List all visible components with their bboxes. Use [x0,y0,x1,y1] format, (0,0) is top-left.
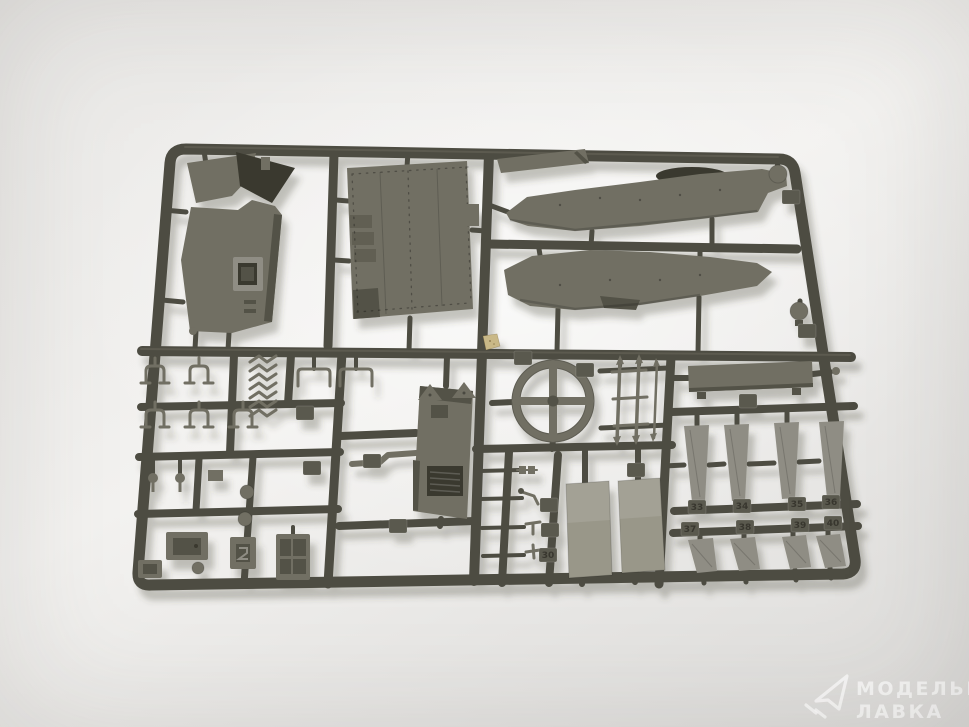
watermark-line2: ЛАВКА [856,701,944,723]
watermark: МОДЕЛЬНАЯ ЛАВКА [806,676,969,723]
watermark-line1: МОДЕЛЬНАЯ [856,678,969,700]
paper-plane-icon [806,676,847,717]
product-photo: 33 34 35 36 37 38 39 40 30 [0,0,969,727]
sprue-photo-svg: 33 34 35 36 37 38 39 40 30 [0,0,969,727]
